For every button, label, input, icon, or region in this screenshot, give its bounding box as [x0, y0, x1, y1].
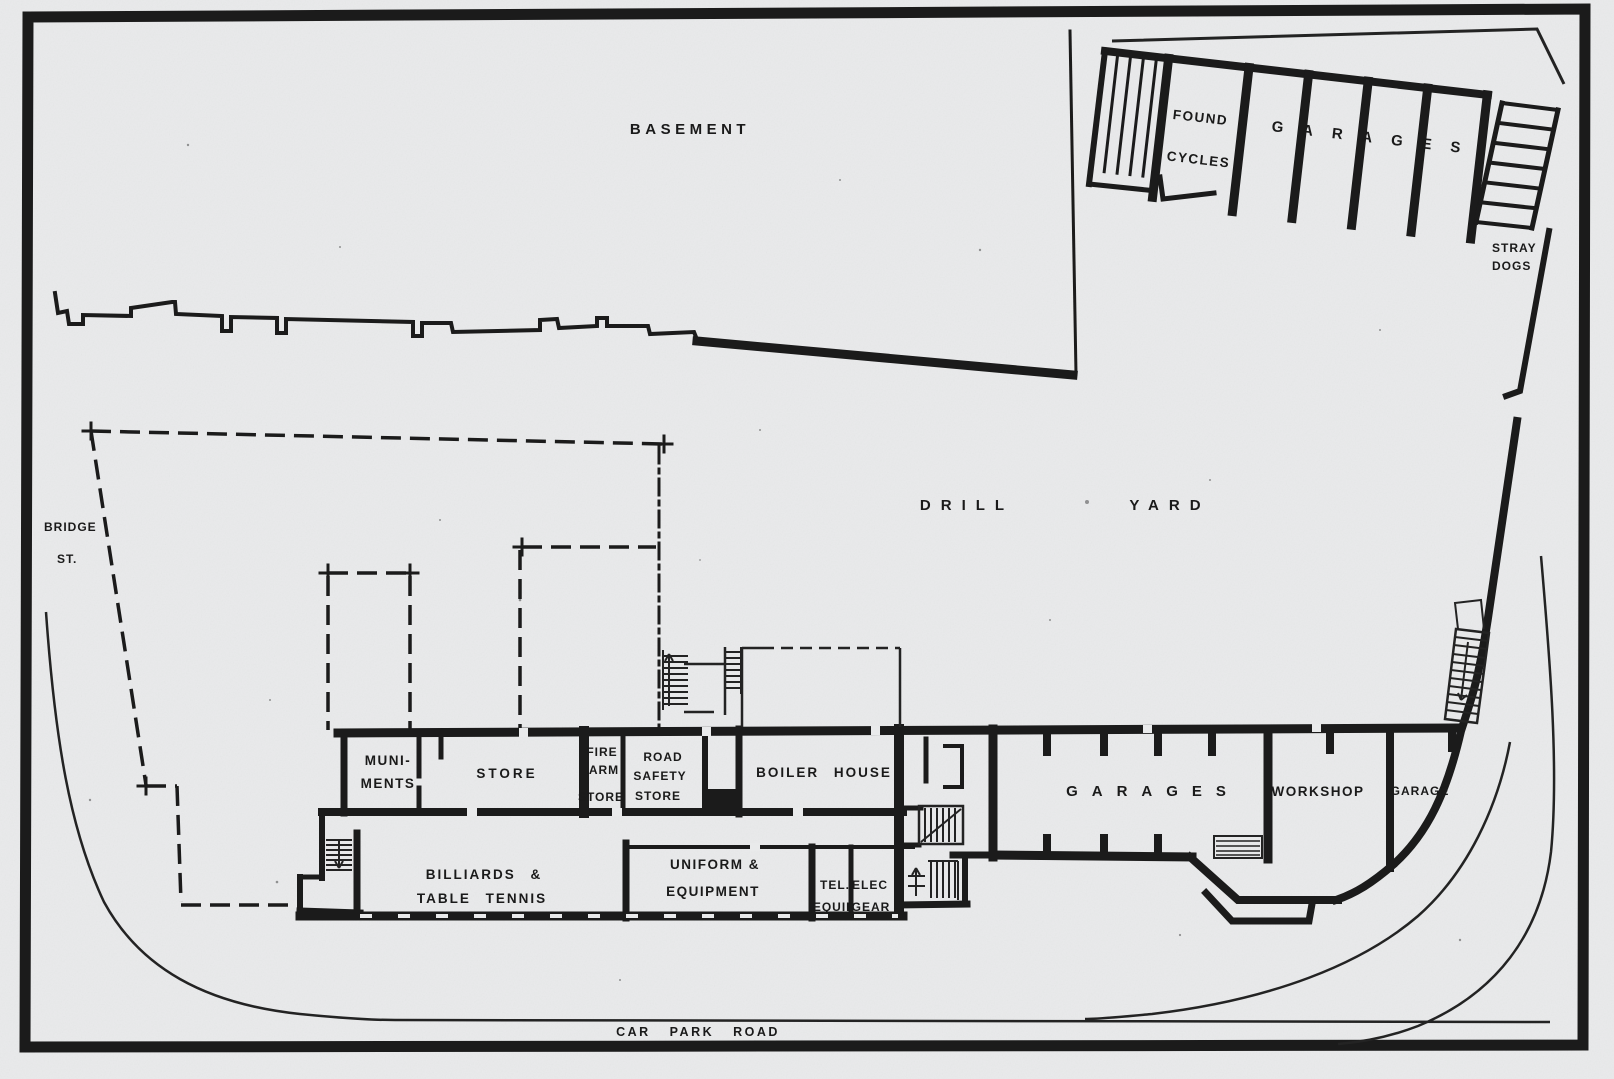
stray-dogs-label-1: STRAY: [1492, 241, 1537, 255]
tel-label: TEL.: [820, 878, 850, 892]
floor-plan-svg: BASEMENT DRILL YARD BRIDGE ST. CAR PARK …: [0, 0, 1614, 1079]
workshop-label: WORKSHOP: [1272, 784, 1365, 799]
gear-label: GEAR: [852, 900, 891, 914]
bridge-st-label-2: ST.: [57, 552, 77, 566]
car-park-road-label: CAR PARK ROAD: [616, 1025, 780, 1039]
store-label: STORE: [476, 766, 537, 781]
muniments-label-1: MUNI-: [365, 753, 412, 768]
basement-floor-plan-scan: BASEMENT DRILL YARD BRIDGE ST. CAR PARK …: [0, 0, 1614, 1079]
road-safety-store-label-3: STORE: [635, 789, 681, 803]
uniform-label-2: EQUIPMENT: [666, 884, 760, 899]
lobby-solid-block: [706, 789, 740, 812]
stray-dogs-label-2: DOGS: [1492, 259, 1531, 273]
firearm-store-label-1: FIRE: [586, 745, 617, 759]
equip-label: EQUIP: [813, 900, 855, 914]
boiler-house-label: BOILER HOUSE: [756, 765, 892, 780]
firearm-store-label-2: ARM: [589, 763, 619, 777]
uniform-label-1: UNIFORM &: [670, 857, 760, 872]
billiards-label-2: TABLE TENNIS: [417, 891, 547, 906]
elec-label: ELEC: [852, 878, 888, 892]
garages-south-wall: [993, 855, 1192, 857]
garages-main-label: GARAGES: [1066, 783, 1240, 800]
road-safety-store-label-2: SAFETY: [633, 769, 686, 783]
garage-label: GARAGE: [1391, 784, 1450, 798]
basement-title: BASEMENT: [630, 121, 750, 138]
billiards-label-1: BILLIARDS &: [426, 867, 543, 882]
muniments-label-2: MENTS: [361, 776, 416, 791]
firearm-store-label-3: STORE: [578, 790, 624, 804]
road-safety-store-label-1: ROAD: [643, 750, 682, 764]
drill-yard-label-2: YARD: [1129, 497, 1210, 514]
west-staircase: [326, 840, 352, 870]
hall-south-wall: [899, 904, 967, 905]
drill-yard-label-1: DRILL: [920, 497, 1014, 514]
bridge-st-label-1: BRIDGE: [44, 520, 97, 534]
